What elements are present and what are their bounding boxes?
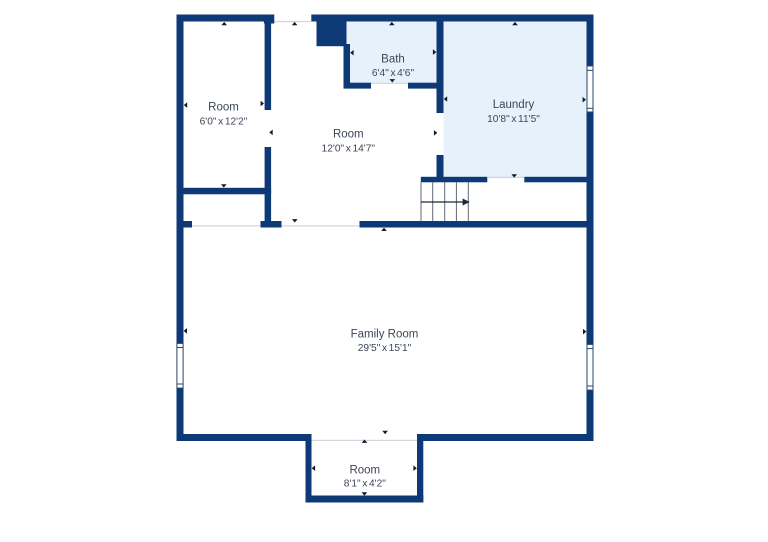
svg-text:6'0" x 12'2": 6'0" x 12'2": [200, 117, 248, 128]
svg-text:6'4" x 4'6": 6'4" x 4'6": [372, 68, 415, 79]
svg-text:Room: Room: [349, 465, 380, 477]
svg-text:Room: Room: [333, 128, 364, 140]
svg-text:Room: Room: [208, 102, 239, 114]
svg-text:Family Room: Family Room: [351, 328, 419, 340]
svg-text:8'1" x 4'2": 8'1" x 4'2": [344, 478, 387, 489]
svg-text:12'0" x 14'7": 12'0" x 14'7": [322, 143, 376, 154]
svg-text:Bath: Bath: [381, 54, 405, 66]
svg-text:10'8" x 11'5": 10'8" x 11'5": [487, 114, 540, 125]
svg-text:29'5" x 15'1": 29'5" x 15'1": [358, 343, 412, 354]
svg-text:Laundry: Laundry: [493, 99, 535, 111]
